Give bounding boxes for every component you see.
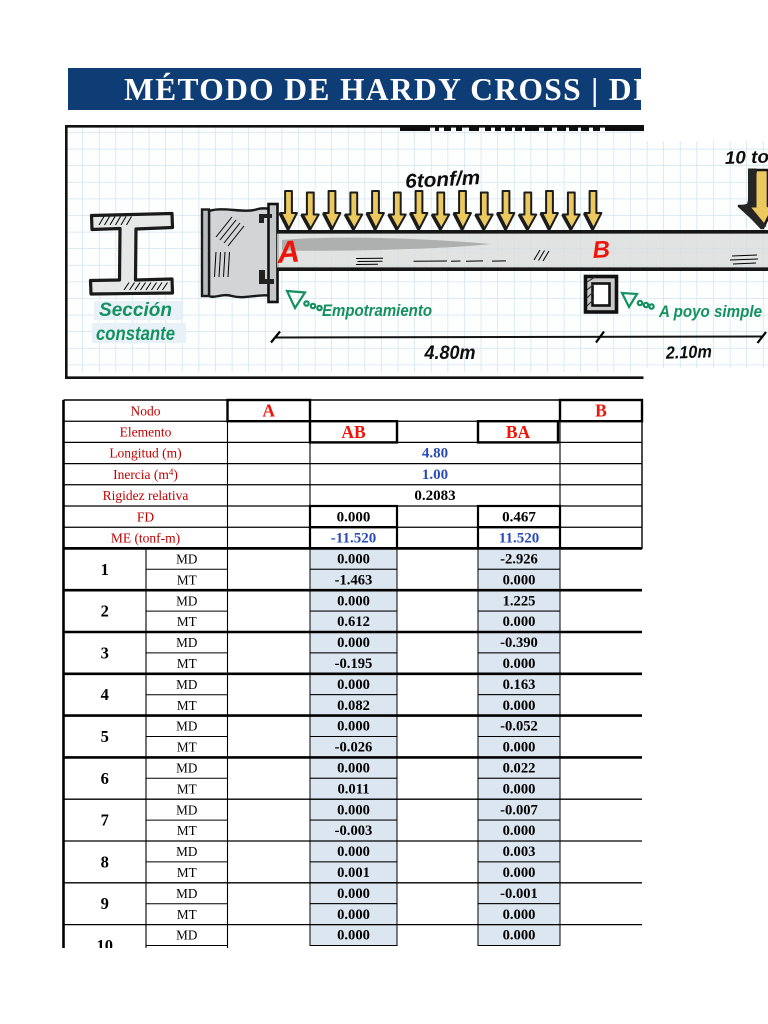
svg-text:0.000: 0.000 [503, 698, 536, 714]
svg-text:-0.003: -0.003 [335, 823, 373, 839]
svg-text:-0.001: -0.001 [500, 886, 538, 902]
svg-text:MD: MD [176, 719, 197, 734]
svg-text:MD: MD [176, 928, 197, 943]
svg-text:-0.007: -0.007 [500, 802, 538, 818]
svg-text:FD: FD [137, 509, 155, 524]
svg-text:-11.520: -11.520 [331, 531, 376, 547]
svg-text:B: B [595, 400, 607, 420]
svg-text:MD: MD [176, 760, 197, 775]
svg-text:0.000: 0.000 [337, 928, 370, 944]
svg-text:Inercia (m4): Inercia (m4) [113, 467, 178, 482]
svg-text:1.00: 1.00 [422, 467, 448, 483]
svg-text:MÉTODO DE HARDY CROSS | DI: MÉTODO DE HARDY CROSS | DI [124, 72, 646, 107]
svg-text:2.10m: 2.10m [665, 341, 713, 363]
svg-text:11.520: 11.520 [499, 531, 539, 547]
svg-text:-2.926: -2.926 [500, 551, 538, 567]
svg-text:MD: MD [176, 593, 197, 608]
svg-text:0.612: 0.612 [337, 614, 370, 630]
svg-text:MT: MT [177, 907, 197, 922]
svg-text:10 tonf: 10 tonf [724, 146, 768, 168]
svg-text:0.000: 0.000 [337, 907, 370, 923]
svg-text:0.000: 0.000 [337, 760, 370, 776]
svg-text:MT: MT [177, 656, 197, 671]
svg-text:2: 2 [101, 602, 109, 621]
svg-text:constante: constante [96, 324, 175, 345]
svg-text:0.2083: 0.2083 [414, 488, 455, 504]
svg-text:ME (tonf-m): ME (tonf-m) [111, 531, 180, 546]
svg-text:5: 5 [101, 727, 109, 746]
svg-text:-0.052: -0.052 [500, 719, 538, 735]
svg-text:MT: MT [177, 781, 197, 796]
svg-text:0.000: 0.000 [337, 677, 370, 693]
svg-text:MD: MD [176, 886, 197, 901]
svg-text:0.163: 0.163 [503, 677, 536, 693]
svg-text:MD: MD [176, 677, 197, 692]
svg-text:0.000: 0.000 [337, 886, 370, 902]
svg-text:-1.463: -1.463 [335, 572, 373, 588]
svg-text:BA: BA [506, 422, 531, 442]
svg-text:-0.195: -0.195 [335, 656, 373, 672]
svg-text:AB: AB [341, 422, 366, 442]
svg-text:MD: MD [176, 551, 197, 566]
svg-text:A: A [275, 234, 301, 271]
svg-text:3: 3 [101, 643, 109, 662]
svg-text:-0.390: -0.390 [500, 635, 538, 651]
svg-text:7: 7 [101, 811, 109, 830]
svg-text:A poyo simple: A poyo simple [658, 302, 762, 321]
svg-text:1.225: 1.225 [503, 593, 536, 609]
svg-text:0.000: 0.000 [337, 551, 370, 567]
svg-text:MT: MT [177, 865, 197, 880]
svg-text:MD: MD [176, 635, 197, 650]
svg-text:0.467: 0.467 [502, 509, 536, 525]
svg-text:0.003: 0.003 [503, 844, 536, 860]
svg-text:MT: MT [177, 740, 197, 755]
svg-text:0.000: 0.000 [503, 928, 536, 944]
svg-text:Sección: Sección [99, 300, 172, 321]
svg-text:MD: MD [176, 844, 197, 859]
svg-text:Empotramiento: Empotramiento [322, 301, 432, 320]
svg-text:0.000: 0.000 [503, 572, 536, 588]
svg-text:MT: MT [177, 614, 197, 629]
svg-text:4.80m: 4.80m [424, 343, 476, 364]
svg-text:6tonf/m: 6tonf/m [405, 167, 481, 193]
svg-text:6: 6 [101, 769, 109, 788]
svg-text:MT: MT [177, 698, 197, 713]
svg-text:Elemento: Elemento [120, 425, 172, 440]
svg-text:0.000: 0.000 [503, 656, 536, 672]
svg-text:MT: MT [177, 572, 197, 587]
svg-text:0.000: 0.000 [503, 865, 536, 881]
svg-text:A: A [262, 400, 275, 420]
svg-text:0.082: 0.082 [337, 698, 370, 714]
svg-text:9: 9 [101, 894, 109, 913]
svg-text:MT: MT [177, 823, 197, 838]
svg-text:-0.026: -0.026 [335, 740, 373, 756]
svg-text:0.000: 0.000 [503, 740, 536, 756]
svg-text:MD: MD [176, 802, 197, 817]
svg-text:B: B [592, 236, 611, 264]
svg-text:0.022: 0.022 [503, 760, 536, 776]
svg-text:0.000: 0.000 [337, 593, 370, 609]
svg-text:0.000: 0.000 [337, 802, 370, 818]
svg-text:1: 1 [101, 560, 109, 579]
svg-text:4.80: 4.80 [422, 446, 448, 462]
svg-text:0.000: 0.000 [503, 614, 536, 630]
svg-text:0.000: 0.000 [503, 907, 536, 923]
svg-text:0.000: 0.000 [503, 823, 536, 839]
svg-text:0.000: 0.000 [337, 509, 371, 525]
svg-text:Rigidez relativa: Rigidez relativa [103, 488, 189, 503]
svg-text:Longitud (m): Longitud (m) [109, 446, 181, 461]
svg-text:0.001: 0.001 [337, 865, 370, 881]
svg-text:0.000: 0.000 [503, 781, 536, 797]
svg-text:Nodo: Nodo [131, 403, 161, 418]
svg-text:4: 4 [101, 685, 109, 704]
svg-text:0.000: 0.000 [337, 719, 370, 735]
svg-text:0.000: 0.000 [337, 844, 370, 860]
svg-text:0.000: 0.000 [337, 635, 370, 651]
svg-text:8: 8 [101, 852, 109, 871]
svg-text:0.011: 0.011 [337, 781, 369, 797]
